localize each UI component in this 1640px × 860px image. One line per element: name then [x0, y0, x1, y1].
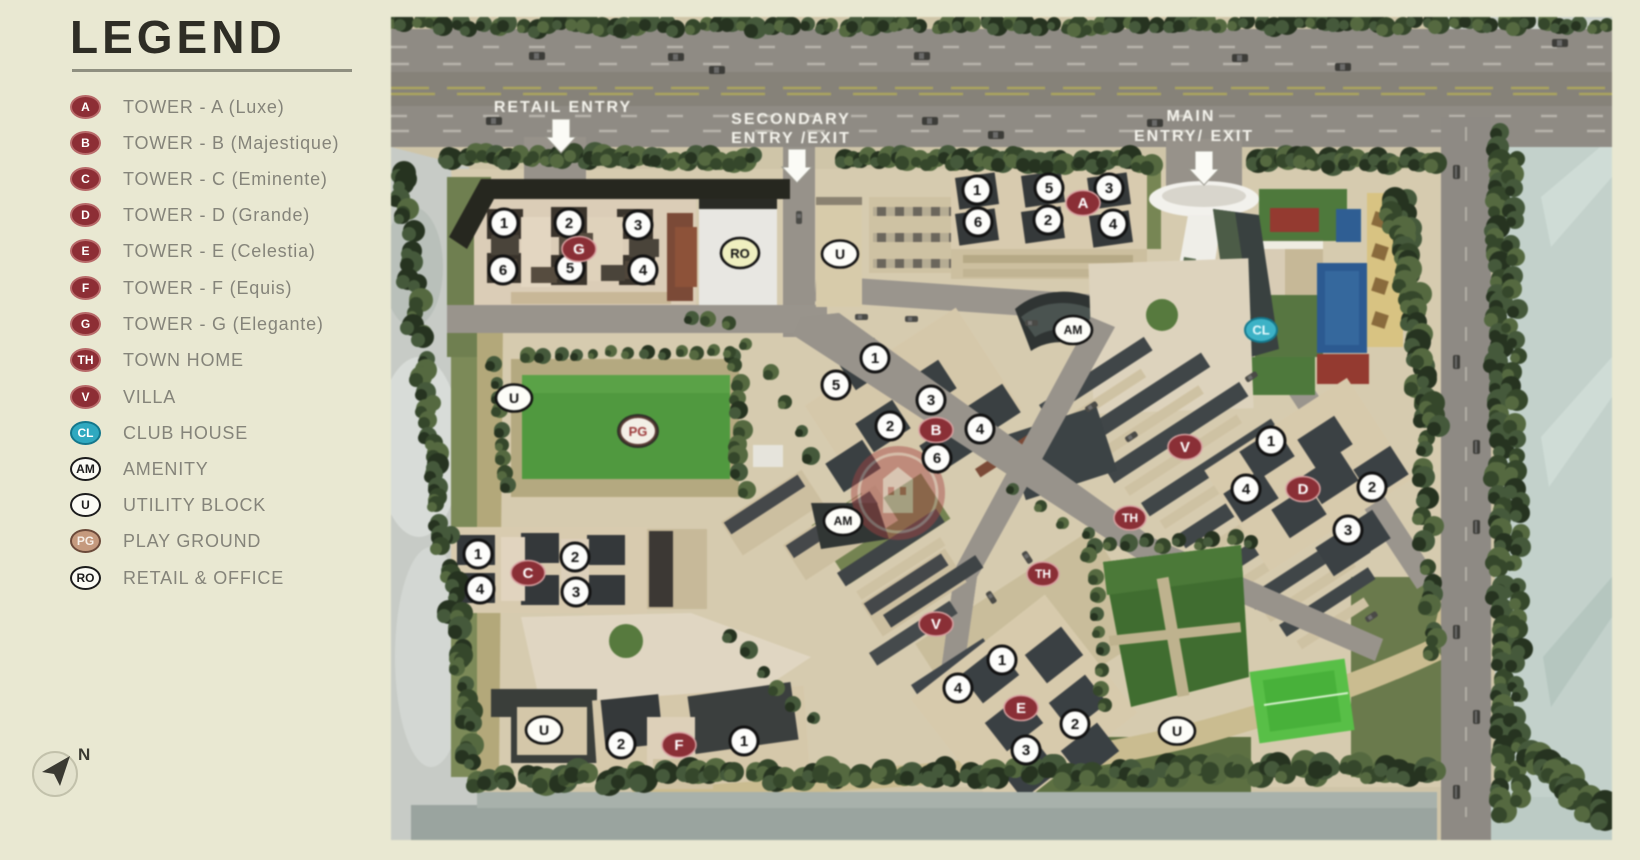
svg-text:4: 4: [976, 421, 985, 438]
svg-text:5: 5: [566, 260, 574, 277]
svg-text:1: 1: [474, 546, 482, 563]
svg-text:PG: PG: [629, 424, 648, 439]
svg-text:1: 1: [871, 350, 879, 367]
svg-text:4: 4: [1242, 481, 1251, 498]
svg-text:1: 1: [973, 182, 981, 199]
svg-text:C: C: [523, 565, 534, 582]
svg-text:CL: CL: [1252, 323, 1269, 338]
svg-text:3: 3: [634, 217, 642, 234]
svg-text:3: 3: [1344, 522, 1352, 539]
svg-text:D: D: [1298, 481, 1309, 498]
svg-text:AM: AM: [834, 514, 853, 528]
svg-text:U: U: [1172, 723, 1182, 739]
svg-text:TH: TH: [1035, 567, 1051, 581]
svg-text:3: 3: [927, 392, 935, 409]
svg-text:2: 2: [565, 215, 573, 232]
svg-text:1: 1: [998, 652, 1006, 669]
svg-text:N: N: [78, 745, 90, 764]
svg-text:2: 2: [1071, 716, 1079, 733]
svg-text:AM: AM: [1064, 323, 1083, 337]
svg-text:ENTRY /EXIT: ENTRY /EXIT: [731, 130, 851, 147]
svg-text:4: 4: [1109, 216, 1118, 233]
svg-text:3: 3: [1105, 180, 1113, 197]
svg-text:U: U: [539, 722, 549, 738]
svg-text:RO: RO: [730, 246, 750, 261]
svg-text:2: 2: [571, 549, 579, 566]
svg-text:3: 3: [1022, 742, 1030, 759]
svg-text:RETAIL ENTRY: RETAIL ENTRY: [494, 99, 632, 116]
svg-text:TH: TH: [1122, 511, 1138, 525]
svg-text:5: 5: [832, 377, 840, 394]
svg-text:2: 2: [617, 736, 625, 753]
svg-text:E: E: [1016, 700, 1026, 717]
svg-text:1: 1: [740, 733, 748, 750]
svg-text:6: 6: [499, 262, 507, 279]
svg-text:U: U: [509, 390, 519, 406]
svg-text:1: 1: [500, 215, 508, 232]
svg-text:2: 2: [1044, 212, 1052, 229]
svg-text:SECONDARY: SECONDARY: [731, 111, 851, 128]
svg-text:1: 1: [1267, 433, 1275, 450]
svg-text:4: 4: [954, 680, 963, 697]
svg-text:B: B: [931, 422, 942, 439]
svg-text:6: 6: [974, 214, 982, 231]
svg-text:5: 5: [1045, 180, 1053, 197]
svg-text:4: 4: [476, 581, 485, 598]
svg-text:V: V: [931, 616, 941, 633]
svg-text:6: 6: [933, 450, 941, 467]
svg-text:2: 2: [1368, 479, 1376, 496]
svg-text:A: A: [1078, 195, 1089, 212]
svg-text:MAIN: MAIN: [1167, 108, 1216, 125]
svg-text:3: 3: [572, 584, 580, 601]
svg-text:ENTRY/ EXIT: ENTRY/ EXIT: [1134, 128, 1254, 145]
svg-text:4: 4: [639, 262, 648, 279]
svg-text:2: 2: [886, 418, 894, 435]
svg-text:F: F: [674, 737, 683, 754]
svg-text:G: G: [573, 241, 585, 258]
svg-text:V: V: [1180, 439, 1190, 456]
svg-text:U: U: [835, 246, 845, 262]
